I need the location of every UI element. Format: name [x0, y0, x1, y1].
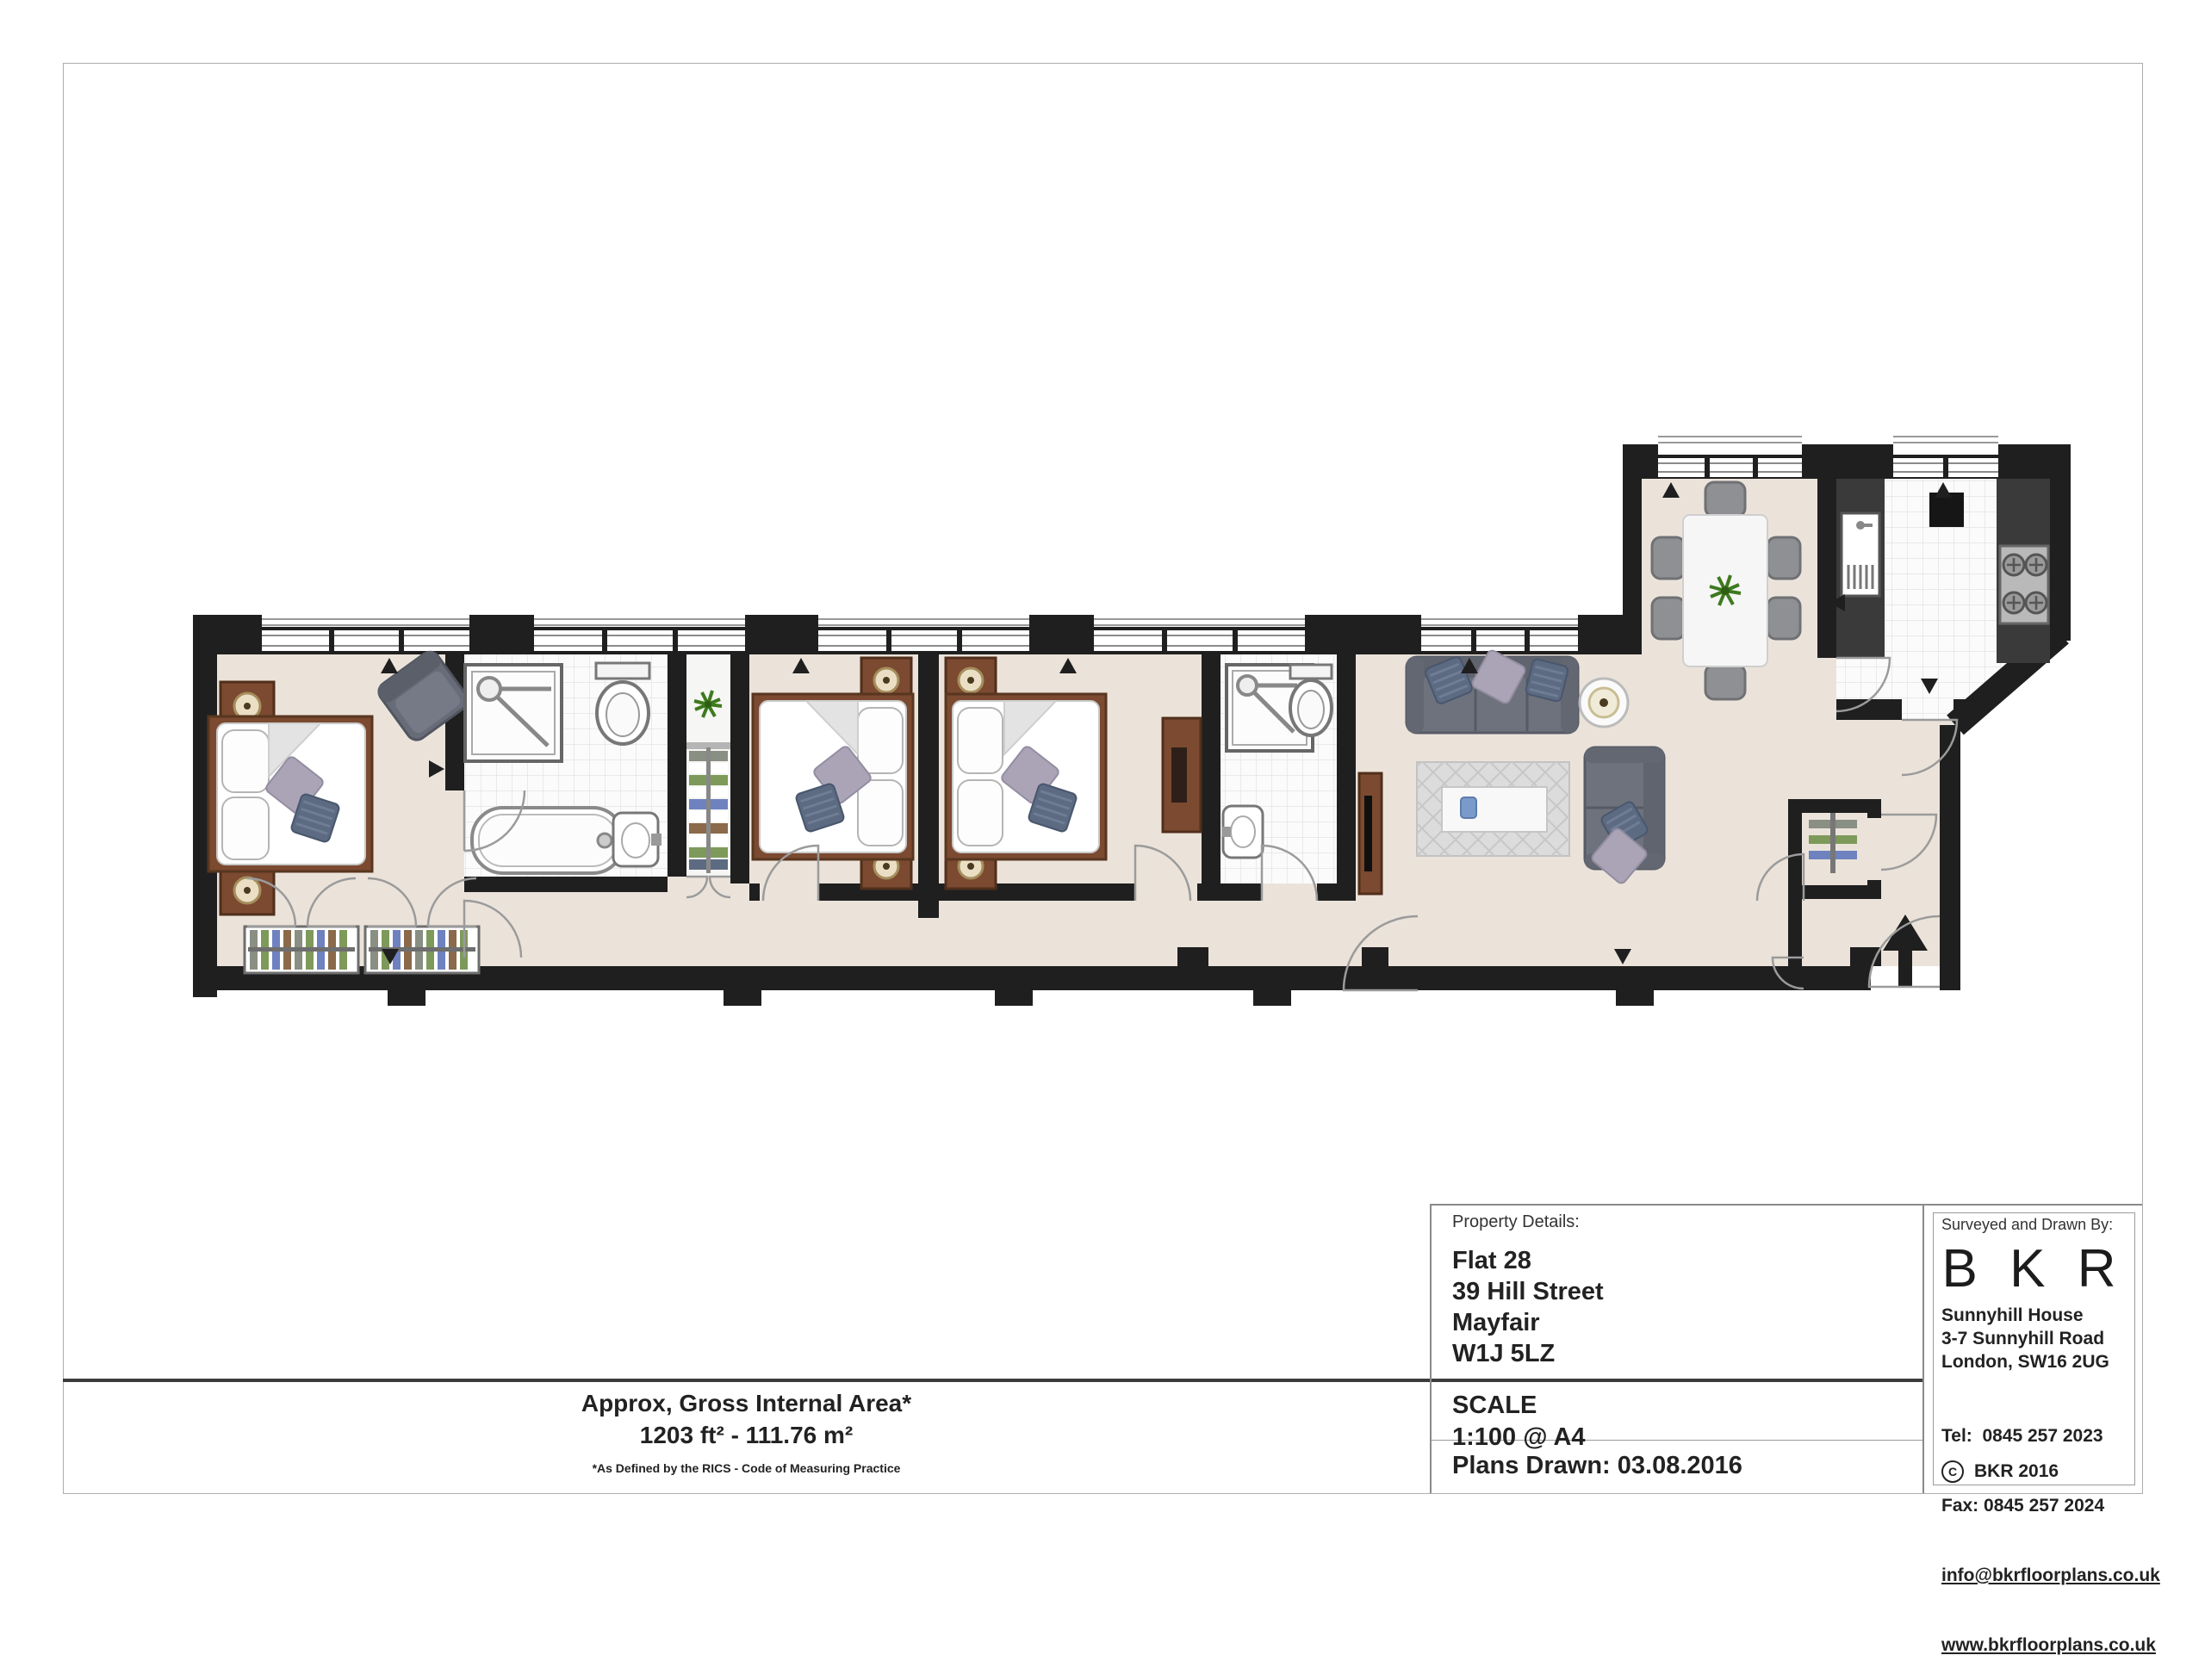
surveyor-address-line: London, SW16 2UG — [1941, 1350, 2109, 1373]
surveyor-label: Surveyed and Drawn By: — [1941, 1216, 2113, 1234]
scale-block: SCALE 1:100 @ A4 — [1452, 1390, 1586, 1454]
copyright-icon: C — [1941, 1460, 1964, 1483]
copyright-text: BKR 2016 — [1974, 1461, 2059, 1482]
surveyor-contacts: Tel: 0845 257 2023 Fax: 0845 257 2024 in… — [1941, 1378, 2160, 1680]
property-address-line: Mayfair — [1452, 1307, 1604, 1338]
titleblock-heavy-rule — [63, 1379, 1923, 1382]
property-address: Flat 28 39 Hill Street Mayfair W1J 5LZ — [1452, 1245, 1604, 1369]
scale-label: SCALE — [1452, 1390, 1586, 1422]
surveyor-tel: Tel: 0845 257 2023 — [1941, 1424, 2160, 1448]
surveyor-address: Sunnyhill House 3-7 Sunnyhill Road Londo… — [1941, 1304, 2109, 1373]
property-box-left-border — [1430, 1204, 1432, 1493]
property-address-line: Flat 28 — [1452, 1245, 1604, 1276]
surveyor-address-line: 3-7 Sunnyhill Road — [1941, 1327, 2109, 1350]
bkr-logo: B K R — [1933, 1238, 2134, 1299]
page-border — [63, 63, 2143, 1494]
titleblock-top-border — [1430, 1204, 2142, 1206]
scale-value: 1:100 @ A4 — [1452, 1422, 1586, 1454]
property-address-line: W1J 5LZ — [1452, 1338, 1604, 1369]
property-address-line: 39 Hill Street — [1452, 1276, 1604, 1307]
surveyor-email-link[interactable]: info@bkrfloorplans.co.uk — [1941, 1564, 2160, 1587]
area-value: 1203 ft² - 111.76 m² — [63, 1422, 1430, 1449]
titleblock-divider — [1922, 1204, 1924, 1493]
copyright-row: C BKR 2016 — [1941, 1460, 2059, 1483]
floorplan-document: { "document": { "area_summary": { "title… — [0, 0, 2205, 1558]
area-footnote: *As Defined by the RICS - Code of Measur… — [63, 1461, 1430, 1475]
area-summary: Approx, Gross Internal Area* 1203 ft² - … — [63, 1390, 1430, 1475]
area-title: Approx, Gross Internal Area* — [63, 1390, 1430, 1417]
surveyor-address-line: Sunnyhill House — [1941, 1304, 2109, 1327]
surveyor-website-link[interactable]: www.bkrfloorplans.co.uk — [1941, 1634, 2160, 1657]
property-details-label: Property Details: — [1452, 1212, 1580, 1232]
plans-drawn: Plans Drawn: 03.08.2016 — [1452, 1452, 1742, 1480]
surveyor-fax: Fax: 0845 257 2024 — [1941, 1494, 2160, 1517]
